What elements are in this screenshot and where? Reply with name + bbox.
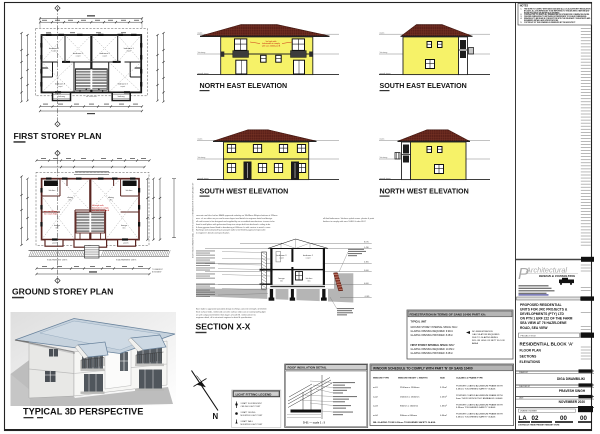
svg-text:DRAWN BY: DRAWN BY: [519, 371, 529, 374]
svg-text:EXISTING BOUNDARY WALL ON SITE: EXISTING BOUNDARY WALL ON SITE LIMIT TO …: [192, 182, 195, 258]
svg-text:tiles: tiles: [55, 226, 58, 229]
svg-text:finishes to comply with sans 1: finishes to comply with sans 10400 & sab…: [323, 220, 367, 223]
svg-text:porch: porch: [123, 243, 128, 245]
svg-text:6.4mm gypsum board fixed to br: 6.4mm gypsum board fixed to brandering a…: [196, 226, 271, 229]
svg-text:max. c/c on rafters as per roo: max. c/c on rafters as per roof trusses …: [196, 217, 273, 220]
svg-text:GLAZING OPENING PROVIDED: 8.2: GLAZING OPENING PROVIDED: 8.25m²: [411, 334, 454, 337]
svg-text:WINDOW HEIGHT x WIDTHS: WINDOW HEIGHT x WIDTHS: [398, 378, 428, 380]
svg-text:NOVEMBER 2020: NOVEMBER 2020: [559, 400, 586, 404]
svg-text:eaves: eaves: [198, 139, 203, 141]
svg-text:SOUTH WEST ELEVATION: SOUTH WEST ELEVATION: [200, 188, 289, 196]
svg-text:TYPICAL UNIT: TYPICAL UNIT: [411, 321, 427, 324]
svg-text:balcony: balcony: [118, 96, 125, 98]
svg-text:carpet: carpet: [102, 54, 107, 57]
svg-text:6.38mm TOUGHENED SAFETY GLASS: 6.38mm TOUGHENED SAFETY GLASS: [456, 416, 496, 419]
svg-text:DUE TO GLAZING BEING: DUE TO GLAZING BEING: [472, 336, 498, 339]
svg-text:AREA: AREA: [472, 342, 478, 345]
svg-text:POWDER COATED ALUMINIUM FRAME: POWDER COATED ALUMINIUM FRAME WITH: [456, 394, 503, 397]
svg-text:ground storey: ground storey: [380, 72, 391, 75]
svg-text:ground storey: ground storey: [198, 72, 209, 75]
svg-text:0.54m²: 0.54m²: [440, 414, 447, 417]
svg-text:ROAD, SEA VIEW: ROAD, SEA VIEW: [520, 326, 548, 330]
svg-text:MOUNTED LIGHT POINT: MOUNTED LIGHT POINT: [241, 424, 264, 426]
svg-text:POWDER COATED ALUMINIUM FRAME: POWDER COATED ALUMINIUM FRAME WITH: [456, 385, 503, 388]
svg-text:carpet: carpet: [52, 49, 57, 52]
svg-text:6mm THICK MONOLITHIC ANNEALED: 6mm THICK MONOLITHIC ANNEALED GLASS: [456, 397, 503, 400]
svg-text:CEILING LIGHT POINT: CEILING LIGHT POINT: [241, 406, 262, 408]
svg-text:fall 14000 wall: fall 14000 wall: [86, 96, 97, 98]
svg-text:GLAZING OPENING PROVIDED: 8.2: GLAZING OPENING PROVIDED: 8.25m²: [411, 352, 454, 355]
svg-text:1st storey: 1st storey: [380, 156, 388, 159]
svg-text:N: N: [213, 412, 219, 421]
svg-text:SECTION X-X: SECTION X-X: [196, 322, 251, 332]
svg-text:DRAWING NUMBER: DRAWING NUMBER: [520, 410, 538, 413]
svg-text:ROOF INSULATION DETAIL: ROOF INSULATION DETAIL: [288, 366, 327, 370]
svg-text:4.305: 4.305: [364, 262, 369, 264]
svg-text:1.35m²: 1.35m²: [440, 405, 447, 408]
svg-text:1st storey: 1st storey: [380, 51, 388, 54]
svg-text:UNITS FOR JRC PROJECTS &: UNITS FOR JRC PROJECTS &: [520, 308, 568, 312]
svg-text:GLAZING OPENING REQUIRED: 10.: GLAZING OPENING REQUIRED: 10.05m²: [411, 348, 455, 351]
svg-text:with sans 10400 part B: with sans 10400 part B: [92, 209, 110, 212]
svg-text:floor slabs to approved specia: floor slabs to approved specialist desig…: [196, 308, 267, 311]
svg-text:1500mm x 1500mm: 1500mm x 1500mm: [400, 396, 420, 398]
svg-text:eaves: eaves: [380, 139, 385, 141]
svg-text:2-WATT FLUORESCENT: 2-WATT FLUORESCENT: [241, 402, 263, 405]
svg-text:D-01 — scale 1 : 5: D-01 — scale 1 : 5: [303, 421, 326, 425]
svg-text:SEA VIEW AT 76 HAZELDENE: SEA VIEW AT 76 HAZELDENE: [520, 321, 567, 325]
svg-text:RESIDENTIAL BLOCK 'A': RESIDENTIAL BLOCK 'A': [520, 342, 574, 347]
svg-text:6.38mm TOUGHENED SAFETY GLASS: 6.38mm TOUGHENED SAFETY GLASS: [456, 406, 496, 409]
svg-text:engineer detail, all to struct: engineer detail, all to structural engin…: [196, 316, 253, 319]
svg-text:FIRST STOREY PLAN: FIRST STOREY PLAN: [14, 131, 102, 141]
svg-text:ON PTN 1 ERF 222 OF THE FARM: ON PTN 1 ERF 222 OF THE FARM: [520, 317, 573, 321]
svg-text:w-04: w-04: [373, 415, 379, 417]
svg-text:6.38mm TOUGHENED SAFETY GLASS: 6.38mm TOUGHENED SAFETY GLASS: [456, 388, 496, 391]
svg-text:concrete roof tiles laid on SA: concrete roof tiles laid on SABS approve…: [196, 214, 278, 217]
svg-text:2100mm x 1500mm: 2100mm x 1500mm: [400, 387, 420, 389]
svg-text:1st storey: 1st storey: [198, 51, 206, 54]
svg-text:kitchen: kitchen: [126, 189, 133, 192]
svg-text:CONTINUOUS THEME PRESENT RESID: CONTINUOUS THEME PRESENT RESIDENT STORE: [518, 425, 560, 427]
svg-text:eaves: eaves: [198, 32, 203, 34]
svg-text:FENESTRATION IN TERMS OF SANS: FENESTRATION IN TERMS OF SANS 10400 PART…: [410, 313, 486, 317]
svg-text:balcony: balcony: [58, 96, 65, 98]
svg-text:thick surface beds, reinforced: thick surface beds, reinforced concrete …: [196, 310, 266, 313]
svg-text:TYPICAL 3D PERSPECTIVE: TYPICAL 3D PERSPECTIVE: [23, 407, 143, 417]
svg-text:1st storey: 1st storey: [198, 156, 206, 159]
svg-text:3.15m²: 3.15m²: [440, 386, 447, 389]
svg-text:NB: GLAZING TO BE 6.38mm TOU: NB: GLAZING TO BE 6.38mm TOUGHENED SAFET…: [373, 421, 436, 424]
svg-text:00: 00: [580, 415, 587, 422]
svg-text:DEVELOPMENTS (PTY) LTD: DEVELOPMENTS (PTY) LTD: [520, 312, 565, 316]
svg-text:carpet: carpet: [279, 256, 284, 259]
svg-text:900mm x 600mm: 900mm x 600mm: [400, 415, 417, 417]
svg-text:carpet: carpet: [306, 256, 311, 259]
svg-text:5.430: 5.430: [364, 247, 369, 249]
svg-text:900mm x 1500mm: 900mm x 1500mm: [400, 406, 418, 408]
svg-text:2-WATT CEILING: 2-WATT CEILING: [241, 411, 256, 414]
svg-text:on well compacted 150mm thick: on well compacted 150mm thick layers of …: [196, 313, 257, 316]
svg-text:WINDOW SCHEDULE TO COMPLY WITH: WINDOW SCHEDULE TO COMPLY WITH PART 'N' …: [373, 367, 473, 371]
svg-text:carpet: carpet: [58, 85, 63, 88]
svg-text:tiles: tiles: [109, 198, 112, 201]
svg-text:DIGA DWAMBILIKI: DIGA DWAMBILIKI: [557, 377, 585, 381]
svg-text:3.000: 3.000: [364, 270, 369, 272]
svg-text:2-WATT WALL: 2-WATT WALL: [241, 420, 253, 423]
svg-text:FLOOR PLAN: FLOOR PLAN: [520, 349, 542, 353]
svg-text:WINDOW TYPE: WINDOW TYPE: [373, 378, 389, 380]
svg-text:DESIGN & CONSULTING: DESIGN & CONSULTING: [539, 274, 576, 278]
svg-text:SIZE: SIZE: [440, 378, 445, 380]
svg-text:ROAD/PAVEMENT LIMITS: ROAD/PAVEMENT LIMITS: [116, 259, 137, 262]
svg-text:LIGHT FITTING LEGEND: LIGHT FITTING LEGEND: [236, 392, 273, 396]
svg-text:NO FENESTRATION: NO FENESTRATION: [472, 330, 493, 333]
svg-text:fixed to wall plates with galv: fixed to wall plates with galvanised hoo…: [196, 223, 271, 226]
svg-text:carpet: carpet: [120, 85, 125, 88]
svg-text:GROUND STOREY INTERNAL SPACE:: GROUND STOREY INTERNAL SPACE: 66m²: [411, 326, 458, 329]
svg-text:min. tread: 250mm: min. tread: 250mm: [44, 213, 59, 216]
svg-text:tiles: tiles: [122, 226, 125, 229]
svg-text:ground storey: ground storey: [380, 177, 391, 180]
svg-text:with sans 10400 part B: with sans 10400 part B: [262, 45, 281, 48]
svg-text:CHECKED BY: CHECKED BY: [519, 386, 531, 388]
svg-text:BOUNDARY: BOUNDARY: [152, 270, 162, 273]
svg-text:ground storey: ground storey: [198, 177, 209, 180]
svg-text:0.000: 0.000: [364, 283, 369, 285]
svg-text:GLAZING & FRAME TYPE: GLAZING & FRAME TYPE: [456, 377, 483, 380]
svg-text:eaves: eaves: [380, 32, 385, 34]
svg-text:tiles: tiles: [307, 279, 310, 282]
svg-text:all roof trusses to be designe: all roof trusses to be designed and supp…: [196, 220, 275, 223]
svg-text:LA: LA: [519, 415, 528, 422]
svg-text:02: 02: [532, 415, 539, 422]
svg-text:NORTH EAST ELEVATION: NORTH EAST ELEVATION: [200, 82, 288, 90]
svg-text:POWDER COATED ALUMINIUM FRAME: POWDER COATED ALUMINIUM FRAME WITH: [456, 413, 503, 416]
svg-text:PRAVESH SINGH: PRAVESH SINGH: [559, 389, 586, 393]
svg-text:-1.085: -1.085: [364, 296, 369, 298]
svg-text:SECTIONS: SECTIONS: [520, 355, 538, 359]
svg-text:POWDER COATED ALUMINIUM FRAME: POWDER COATED ALUMINIUM FRAME WITH: [456, 403, 503, 406]
svg-text:8.075: 8.075: [364, 242, 369, 244]
svg-text:2.25m²: 2.25m²: [440, 395, 447, 398]
svg-text:carpet: carpet: [126, 49, 131, 52]
svg-text:NORTH WEST ELEVATION: NORTH WEST ELEVATION: [380, 188, 469, 196]
svg-text:all tiled bathrooms / kitchens: all tiled bathrooms / kitchens splash ar…: [323, 217, 374, 220]
svg-text:porch: porch: [52, 243, 57, 245]
svg-text:00: 00: [560, 415, 567, 422]
svg-text:to engineer's details and spec: to engineer's details and specification.: [196, 232, 230, 235]
svg-text:flashings and waterproofing to: flashings and waterproofing to parapet w…: [196, 229, 266, 232]
svg-text:SOUTH EAST ELEVATION: SOUTH EAST ELEVATION: [380, 82, 467, 90]
svg-text:ELEVATIONS: ELEVATIONS: [520, 360, 541, 364]
svg-text:PROPOSED RESIDENTIAL: PROPOSED RESIDENTIAL: [520, 303, 562, 307]
svg-text:carpet: carpet: [76, 54, 81, 57]
svg-text:tiles: tiles: [280, 279, 283, 282]
svg-text:w-03: w-03: [373, 406, 379, 408]
svg-text:MOUNTED LIGHT POINT: MOUNTED LIGHT POINT: [241, 415, 264, 417]
svg-text:w-01: w-01: [373, 387, 379, 389]
svg-text:tiles: tiles: [68, 198, 71, 201]
svg-text:w-02: w-02: [373, 396, 379, 398]
svg-text:96% OR LESS OF NETT FLOOR: 96% OR LESS OF NETT FLOOR: [472, 340, 505, 342]
svg-text:CALCULATION REQUIRED: CALCULATION REQUIRED: [472, 333, 500, 336]
svg-text:GLAZING OPENING REQUIRED: 9.9: GLAZING OPENING REQUIRED: 9.90m²: [411, 330, 454, 333]
svg-text:GROUND STOREY PLAN: GROUND STOREY PLAN: [12, 287, 113, 297]
svg-text:NOTES: NOTES: [520, 5, 529, 8]
svg-text:kitchen: kitchen: [49, 189, 56, 192]
svg-text:PROJECT TITLE: PROJECT TITLE: [521, 335, 537, 337]
